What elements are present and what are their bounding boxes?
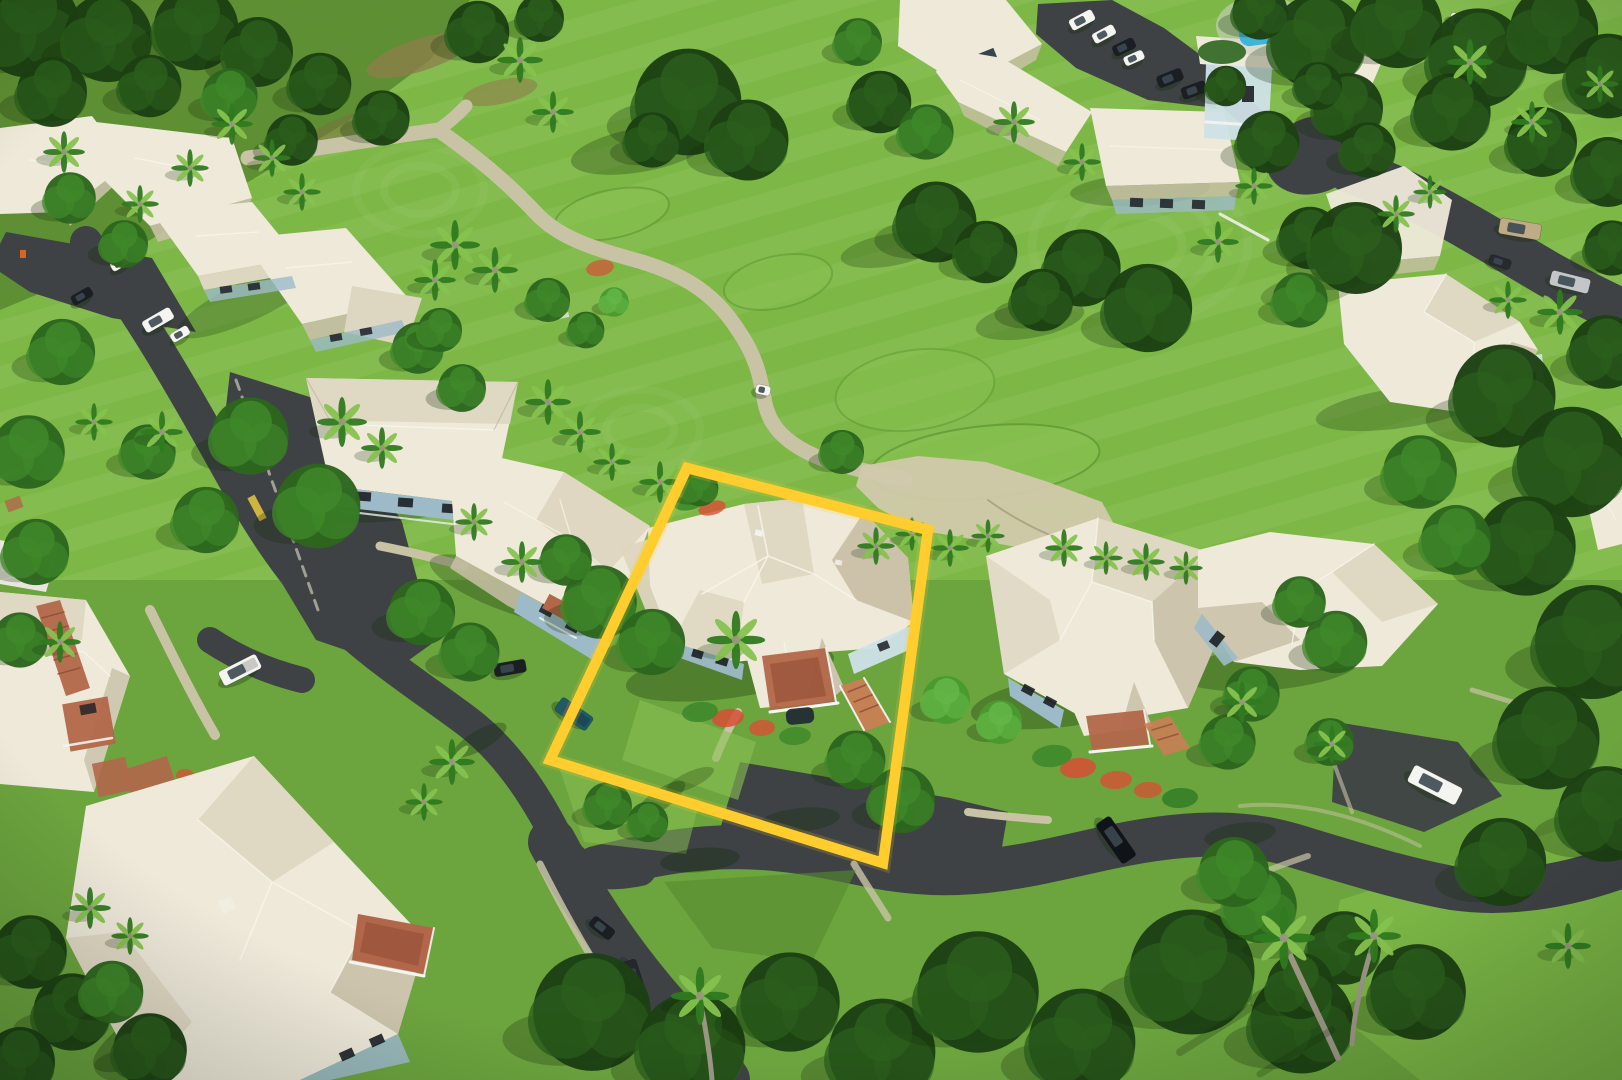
aerial-photo-svg — [0, 0, 1622, 1080]
scene-root — [0, 0, 1622, 1080]
aerial-photo — [0, 0, 1622, 1080]
vignette — [0, 0, 1622, 1080]
